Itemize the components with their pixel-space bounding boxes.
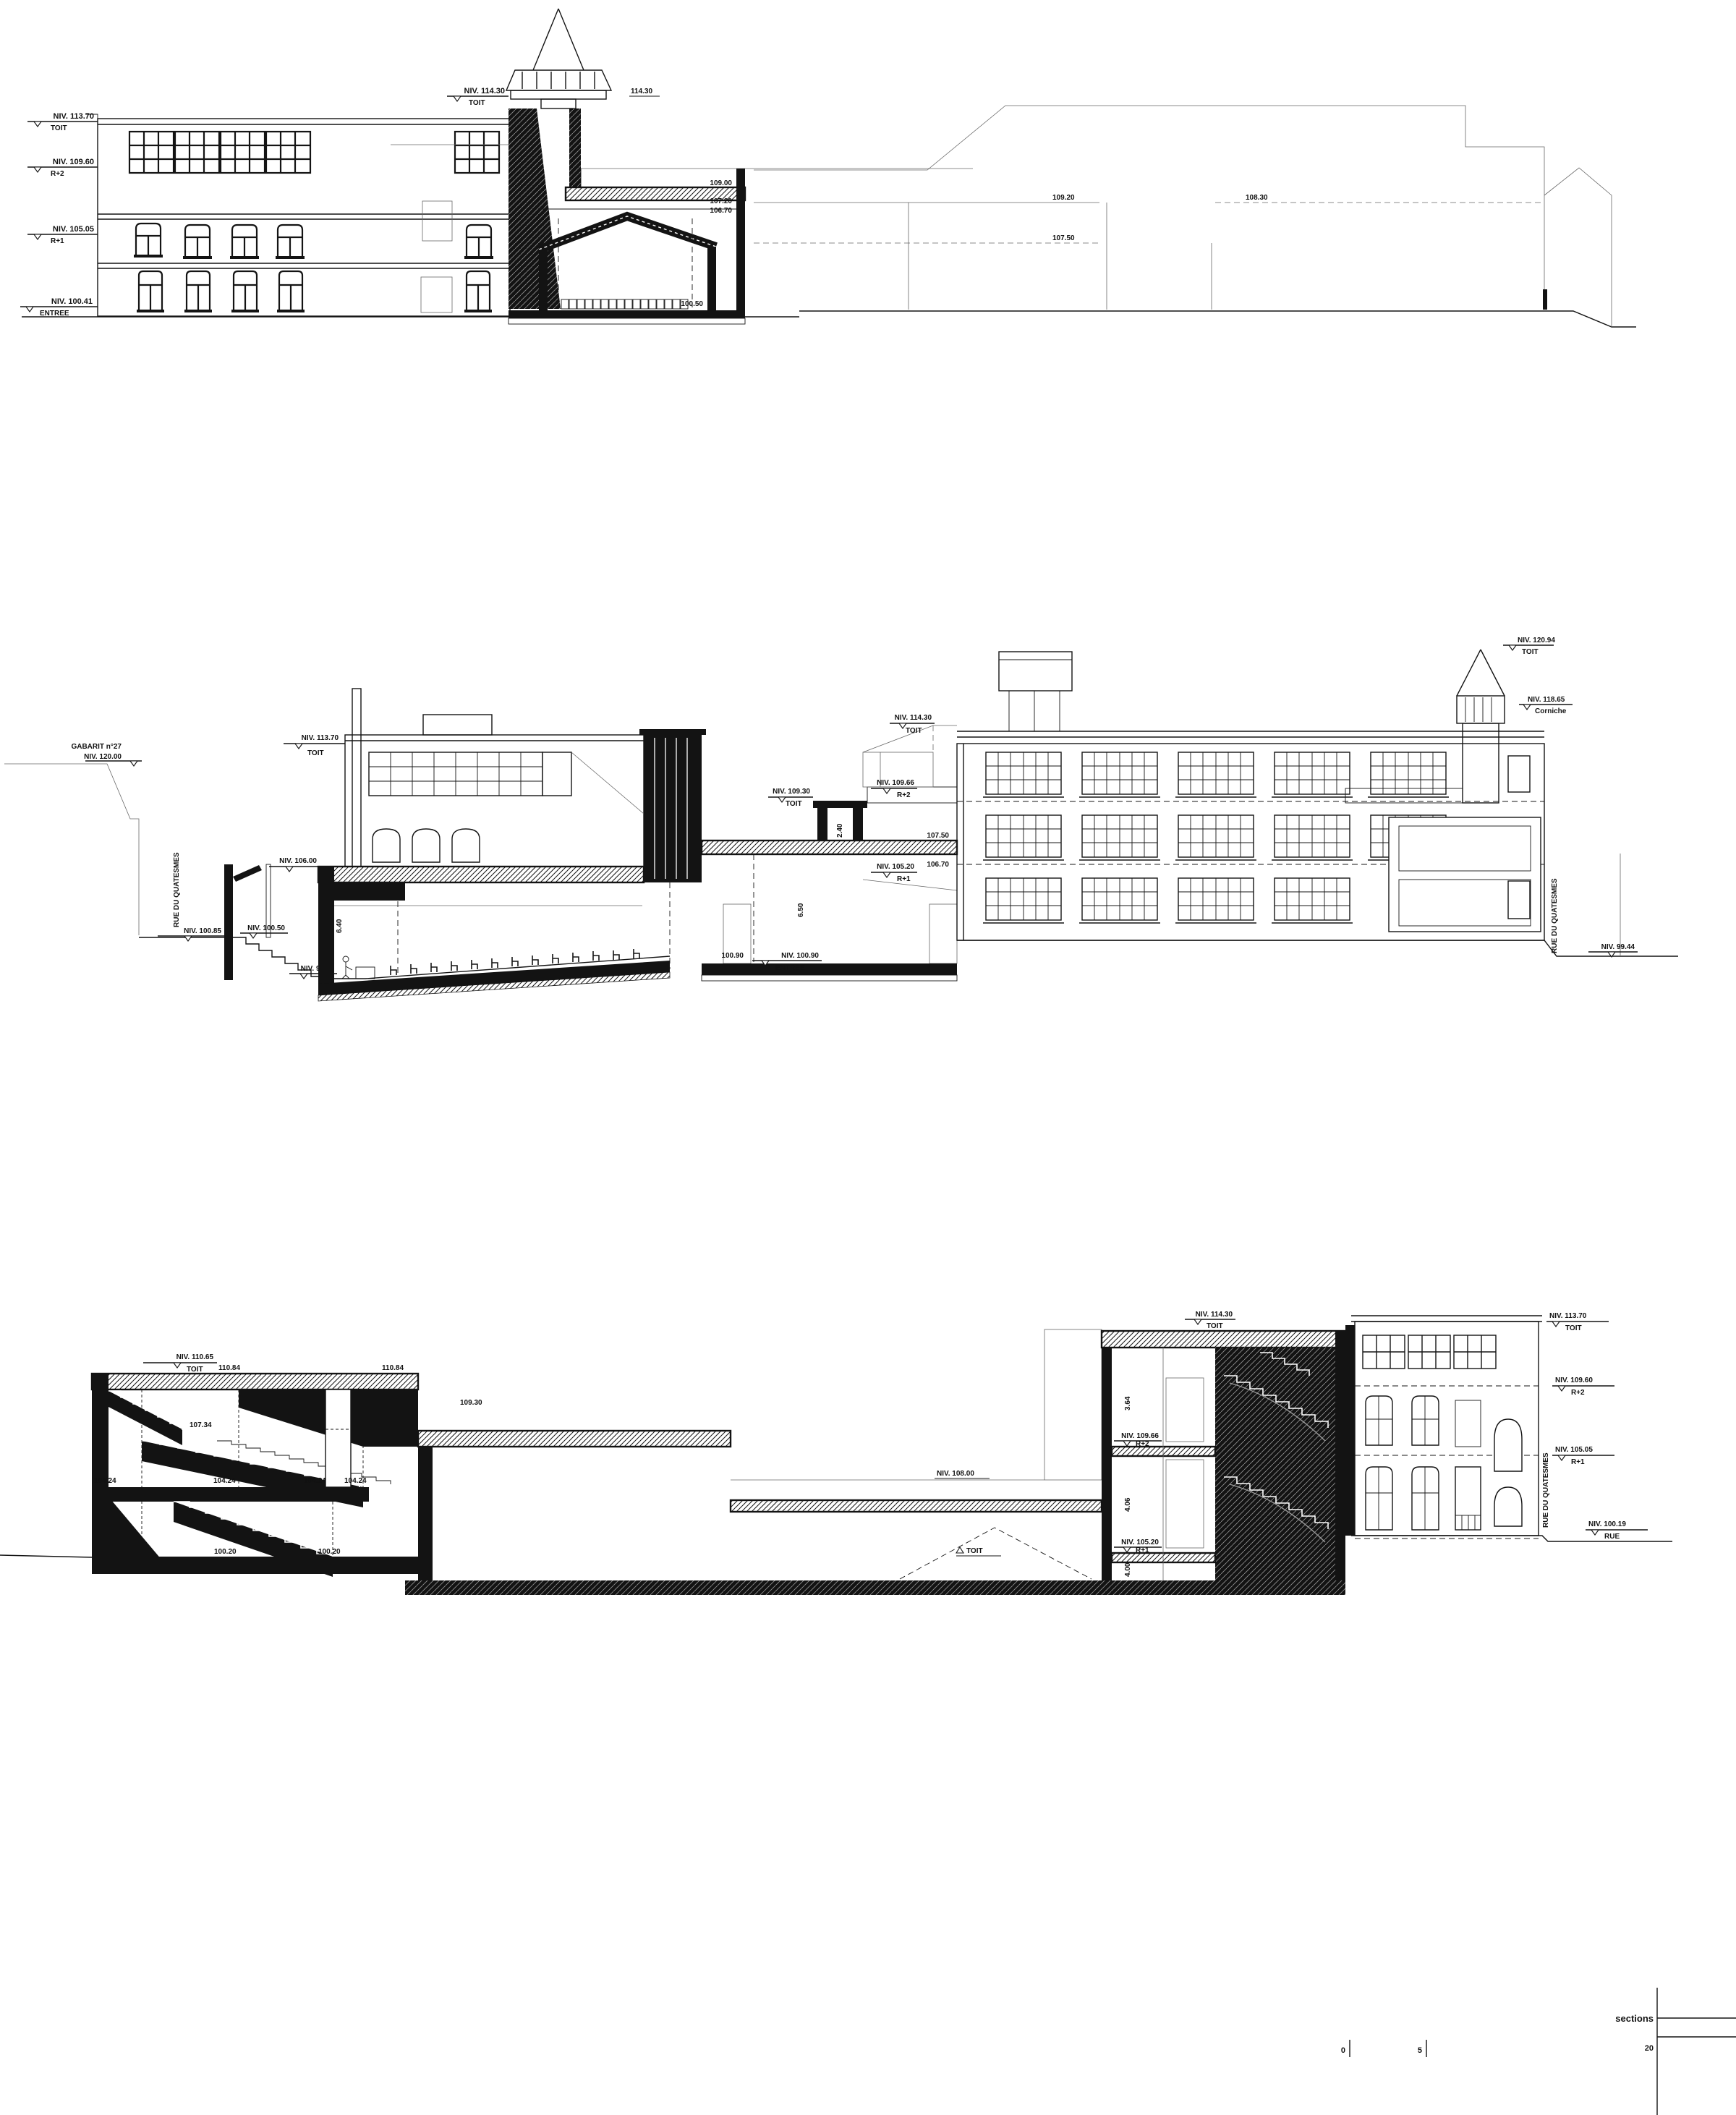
spot-level: 104.24 <box>94 1477 116 1485</box>
dimension: 6.50 <box>797 903 805 917</box>
level-name: R+2 <box>51 170 64 178</box>
spot-level: 110.84 <box>218 1364 240 1372</box>
street-name: RUE DU QUATESMES <box>173 852 181 927</box>
level-name: TOIT <box>1207 1322 1223 1330</box>
left-building-elevation <box>98 119 510 316</box>
ground-line <box>0 1555 92 1557</box>
level-name: TOIT <box>51 124 67 132</box>
level-label: NIV. 113.70 <box>1549 1312 1587 1320</box>
spot-level: 106.70 <box>710 207 732 215</box>
section-1-transverse: NIV. 113.70 TOIT NIV. 109.60 R+2 NIV. 10… <box>20 9 1636 327</box>
level-name: R+2 <box>1136 1440 1149 1448</box>
spot-level: 100.20 <box>318 1548 341 1556</box>
section-2-longitudinal: GABARIT n°27 NIV. 120.00 RUE DU QUATESME… <box>4 637 1678 1001</box>
level-label: NIV. 100.41 <box>51 297 93 306</box>
level-label: NIV. 109.60 <box>53 158 94 166</box>
level-label: NIV. 113.70 <box>54 112 94 121</box>
level-label: NIV. 110.65 <box>176 1353 214 1361</box>
scale-bar: 0 5 <box>1341 2040 1426 2057</box>
drawing-sheet: NIV. 113.70 TOIT NIV. 109.60 R+2 NIV. 10… <box>0 0 1736 2115</box>
level-name: TOIT <box>187 1366 203 1374</box>
level-name: Corniche <box>1535 707 1567 715</box>
level-markers-left: NIV. 113.70 TOIT NIV. 109.60 R+2 NIV. 10… <box>20 112 98 318</box>
spot-level: 109.20 <box>1052 194 1075 202</box>
level-name: TOIT <box>786 800 802 808</box>
level-label: NIV. 109.66 <box>877 779 914 787</box>
level-label: NIV. 114.30 <box>1196 1311 1233 1319</box>
spot-level: 107.34 <box>190 1421 212 1429</box>
sheet-number: 20 <box>1645 2044 1654 2053</box>
spot-level: 114.30 <box>631 88 652 95</box>
dimension: 3.64 <box>1124 1396 1132 1410</box>
spot-level: 107.50 <box>1052 234 1075 242</box>
street-name: RUE DU QUATESMES <box>1542 1452 1550 1528</box>
gabarit-level: NIV. 120.00 <box>84 753 122 761</box>
dimension: 4.06 <box>1124 1497 1132 1512</box>
water-tank <box>999 652 1072 731</box>
level-label: NIV. 105.05 <box>53 225 94 234</box>
sections-drawing: NIV. 113.70 TOIT NIV. 109.60 R+2 NIV. 10… <box>0 0 1736 2115</box>
level-label: NIV. 120.94 <box>1518 637 1555 644</box>
facade-windows <box>1366 1396 1522 1530</box>
level-name: R+2 <box>897 791 911 799</box>
level-label: NIV. 105.20 <box>877 863 914 871</box>
street-name: RUE DU QUATESMES <box>1551 878 1559 953</box>
level-label: NIV. 109.60 <box>1555 1376 1593 1384</box>
gabarit-label: GABARIT n°27 <box>71 743 122 751</box>
level-name: R+1 <box>51 237 64 245</box>
title-block: sections 20 0 5 <box>1341 1988 1736 2115</box>
level-name: R+1 <box>1136 1546 1149 1554</box>
factory-elevation: NIV. 120.94 TOIT NIV. 118.65 Corniche RU… <box>957 637 1678 957</box>
level-name: R+1 <box>897 875 911 883</box>
level-label: NIV. 114.30 <box>895 714 932 722</box>
spot-level: 104.24 <box>213 1477 236 1485</box>
sheet-title: sections <box>1615 2013 1654 2024</box>
level-label: NIV. 100.90 <box>781 952 819 960</box>
spot-level: 107.20 <box>710 197 732 205</box>
spire-tower-section <box>506 9 611 309</box>
tower-level-marker: NIV. 114.30 TOIT 114.30 <box>447 87 660 107</box>
scale-five: 5 <box>1418 2046 1422 2055</box>
spot-level: 107.50 <box>927 832 949 840</box>
level-name: ENTREE <box>40 310 69 318</box>
scale-zero: 0 <box>1341 2046 1345 2055</box>
level-label: NIV. 118.65 <box>1528 696 1565 704</box>
level-label: NIV. 109.66 <box>1121 1432 1159 1440</box>
spot-level: 104.24 <box>304 1477 326 1485</box>
level-name: TOIT <box>307 749 324 757</box>
spot-level: 100.20 <box>214 1548 237 1556</box>
dimension: 2.40 <box>836 823 844 838</box>
level-name: R+2 <box>1571 1389 1585 1397</box>
street-facade: RUE DU QUATESMES NIV. 113.70 TOIT NIV. 1… <box>1345 1312 1672 1541</box>
spot-level: 106.70 <box>927 861 949 869</box>
dimension: 6.40 <box>336 919 344 933</box>
street-level: NIV. 100.85 <box>184 927 221 935</box>
level-label: NIV. 100.50 <box>247 924 285 932</box>
school-elevation: NIV. 113.70 TOIT NIV. 106.00 <box>269 689 644 872</box>
stair-tower-section: NIV. 114.30 TOIT NIV. 109.66 R+2 NIV. 10… <box>1102 1311 1345 1580</box>
level-label: NIV. 105.05 <box>1555 1446 1593 1454</box>
spot-level: 100.90 <box>721 952 744 960</box>
background-buildings: 109.20 107.50 108.30 <box>754 106 1612 327</box>
level-name: R+1 <box>1571 1458 1585 1466</box>
section-3-longitudinal: NIV. 110.65 TOIT 110.84 110.84 109.30 10… <box>0 1311 1672 1595</box>
spot-level: 109.00 <box>710 179 732 187</box>
level-label: NIV. 109.30 <box>773 788 810 796</box>
gabarit-outline: GABARIT n°27 NIV. 120.00 RUE DU QUATESME… <box>4 743 233 941</box>
hall-section: 109.00 107.20 106.70 100.50 <box>509 169 973 324</box>
level-label: NIV. 106.00 <box>279 857 317 865</box>
level-label: NIV. 100.19 <box>1588 1520 1626 1528</box>
level-name: TOIT <box>1565 1324 1582 1332</box>
level-label: NIV. 105.20 <box>1121 1539 1159 1546</box>
level-name: TOIT <box>906 727 922 735</box>
factory-windows <box>983 752 1449 923</box>
spot-level: 110.84 <box>382 1364 404 1372</box>
level-name: TOIT <box>469 99 485 107</box>
spot-level: 104.24 <box>344 1477 367 1485</box>
hall-seats <box>561 299 688 309</box>
level-label: NIV. 114.30 <box>464 87 505 95</box>
foyer-section: 107.50 106.70 6.50 100.90 NIV. 100.90 EN… <box>702 832 957 981</box>
spot-level: 109.30 <box>460 1399 482 1407</box>
level-label: NIV. 113.70 <box>302 734 339 742</box>
street-level: NIV. 99.44 <box>1601 943 1635 951</box>
level-name: ENTREE <box>775 964 805 972</box>
dimension: 4.00 <box>1124 1562 1132 1577</box>
level-label: NIV. 108.00 <box>937 1470 974 1478</box>
level-name: TOIT <box>1522 648 1539 656</box>
ground-line <box>22 311 1636 327</box>
level-name: RUE <box>1604 1533 1620 1541</box>
spot-level: 108.30 <box>1246 194 1268 202</box>
roof-label: TOIT <box>966 1547 983 1555</box>
spot-level: 100.50 <box>681 300 703 308</box>
person-figure <box>342 956 375 979</box>
